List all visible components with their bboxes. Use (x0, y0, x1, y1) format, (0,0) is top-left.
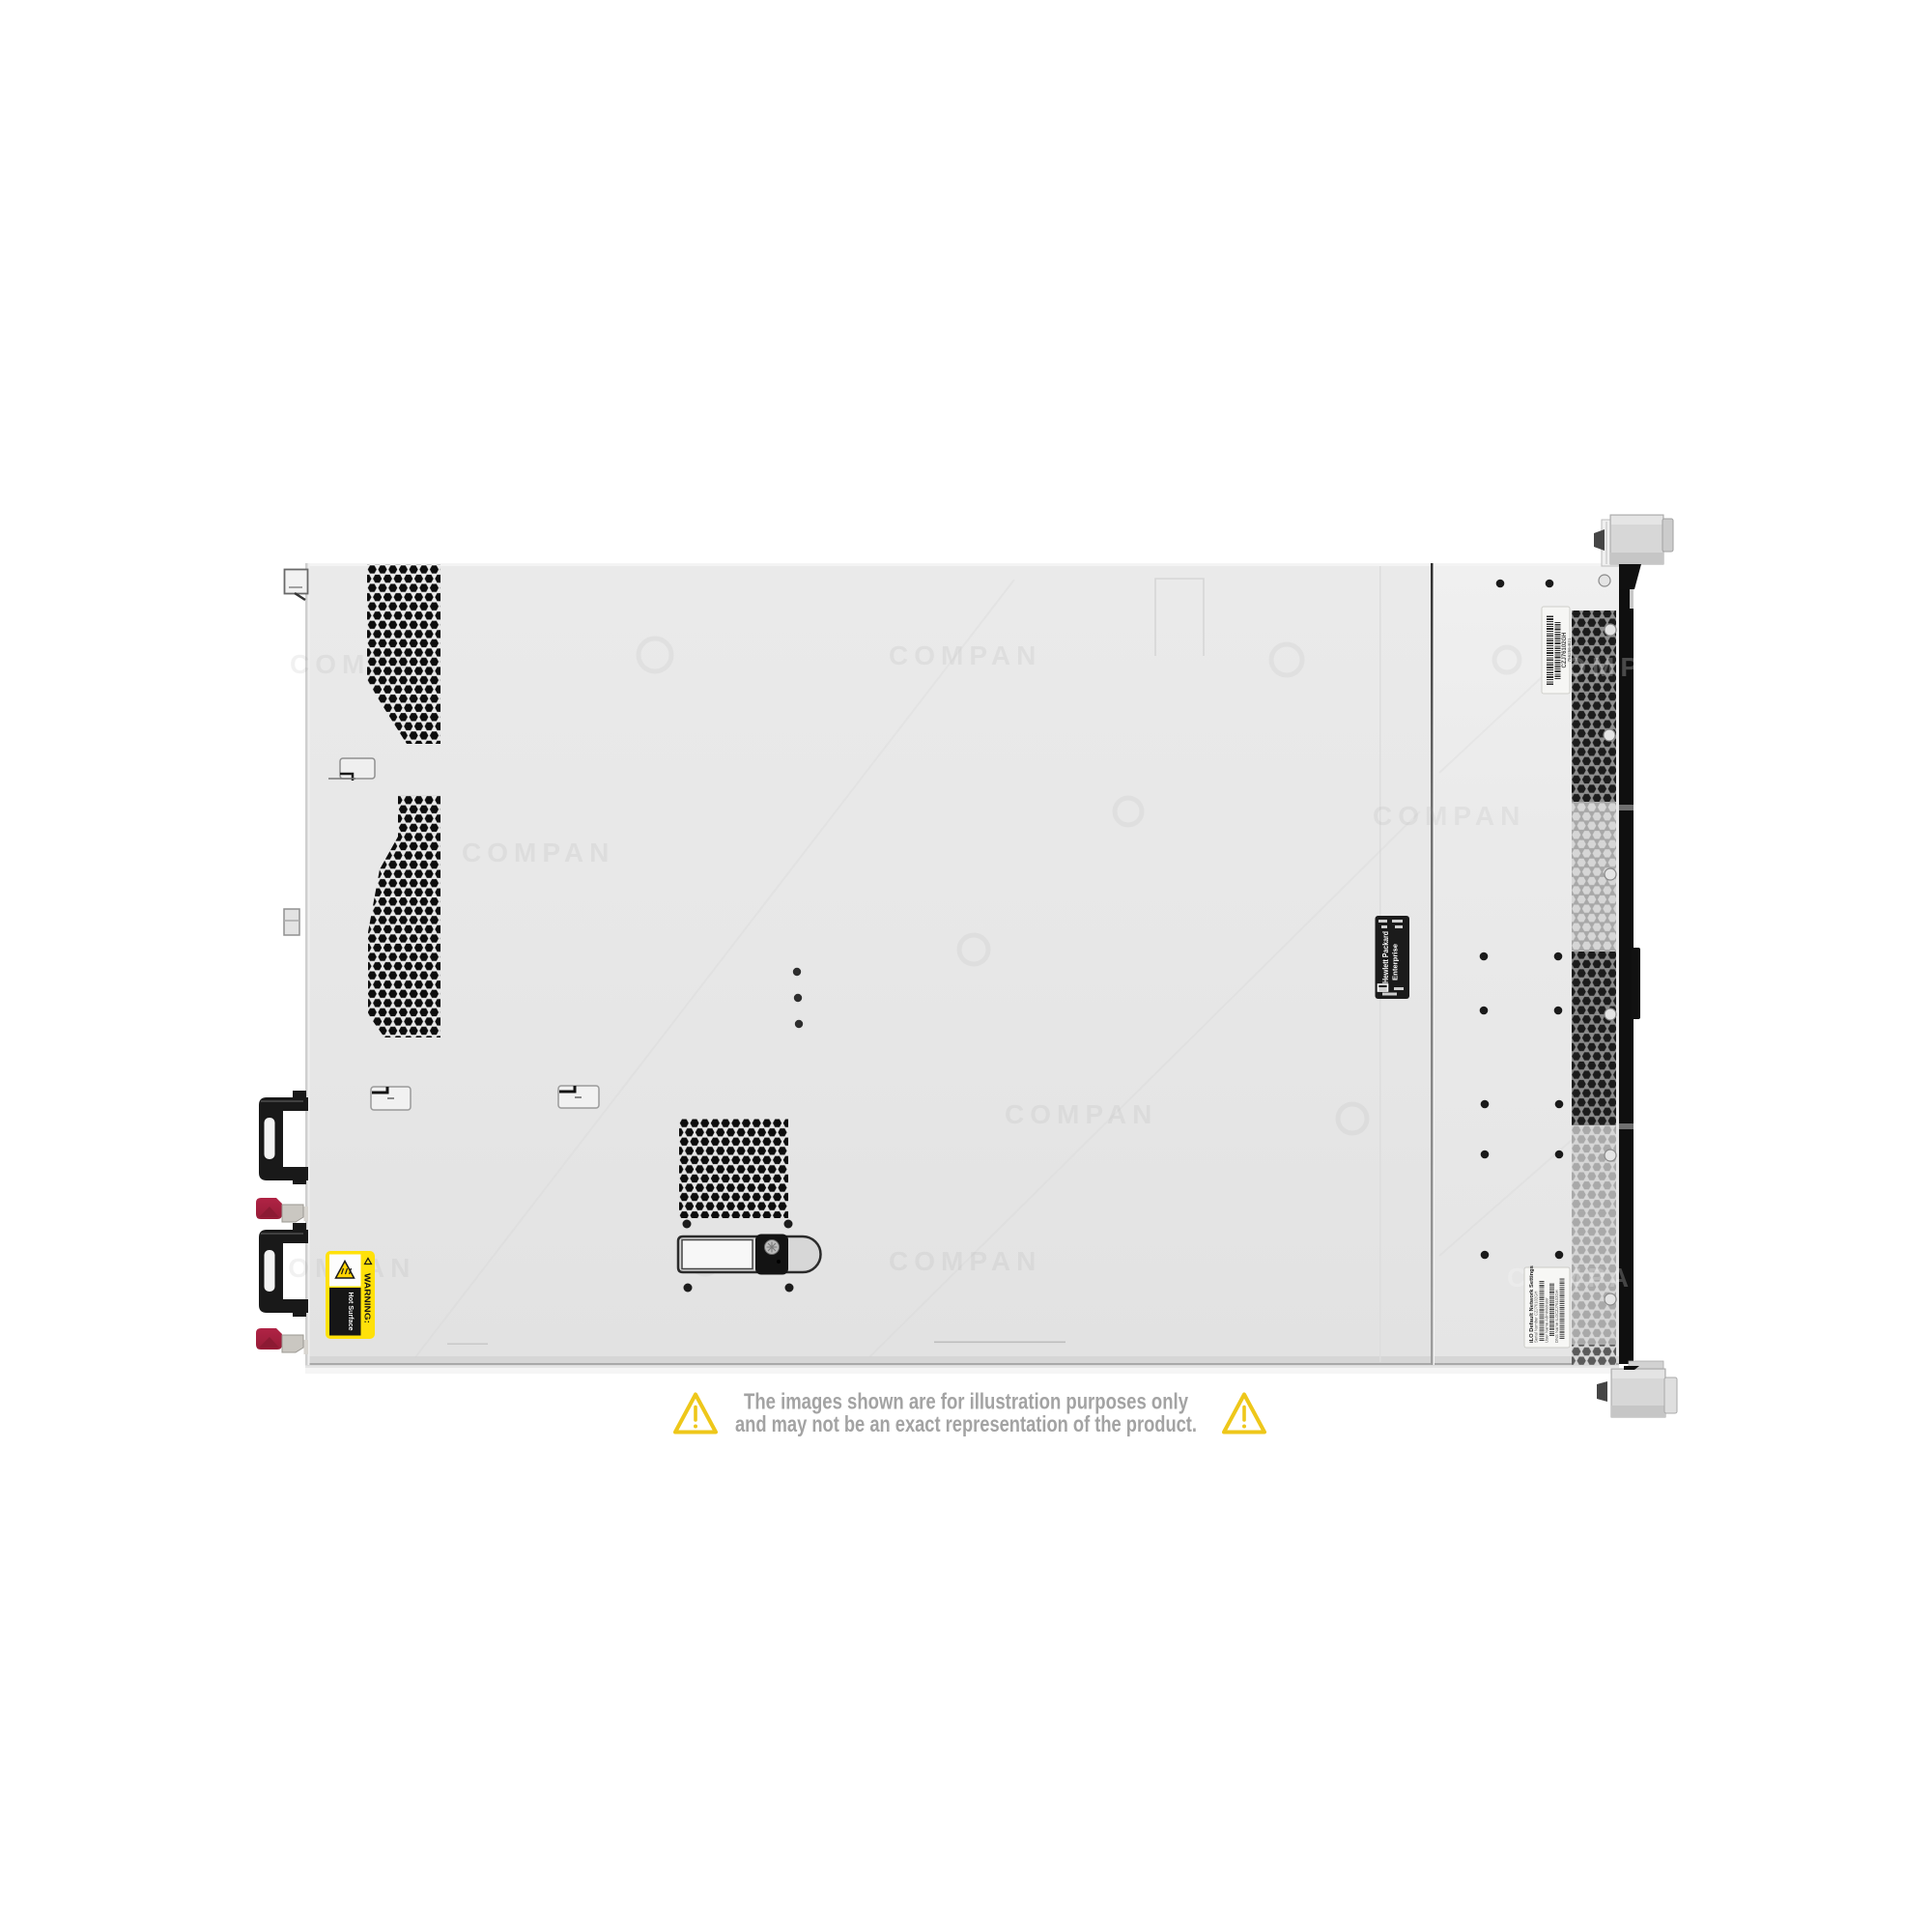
svg-text:and may not be an exact repres: and may not be an exact representation o… (735, 1411, 1197, 1436)
svg-text:Enterprise: Enterprise (1391, 944, 1400, 980)
svg-text:COMPAN: COMPAN (1005, 1099, 1157, 1129)
svg-text:DNS Name ILOCZJ76102GH: DNS Name ILOCZJ76102GH (1554, 1290, 1559, 1343)
svg-text:Hewlett Packard: Hewlett Packard (1381, 931, 1390, 983)
svg-text:WARNING:: WARNING: (363, 1273, 372, 1323)
svg-text:The images shown are for illus: The images shown are for illustration pu… (744, 1389, 1188, 1414)
svg-text:Serial Number CZJ76102GH: Serial Number CZJ76102GH (1534, 1291, 1539, 1343)
svg-text:COMPAN: COMPAN (1373, 801, 1525, 831)
svg-text:COMPAN: COMPAN (889, 1246, 1041, 1276)
svg-text:User Name Administrator: User Name Administrator (1545, 1297, 1549, 1343)
svg-text:COMPAN: COMPAN (889, 640, 1041, 670)
svg-text:756256-B21: 756256-B21 (1567, 638, 1572, 662)
svg-text:Hot Surface: Hot Surface (347, 1293, 355, 1331)
svg-text:COMPAN: COMPAN (462, 838, 614, 867)
